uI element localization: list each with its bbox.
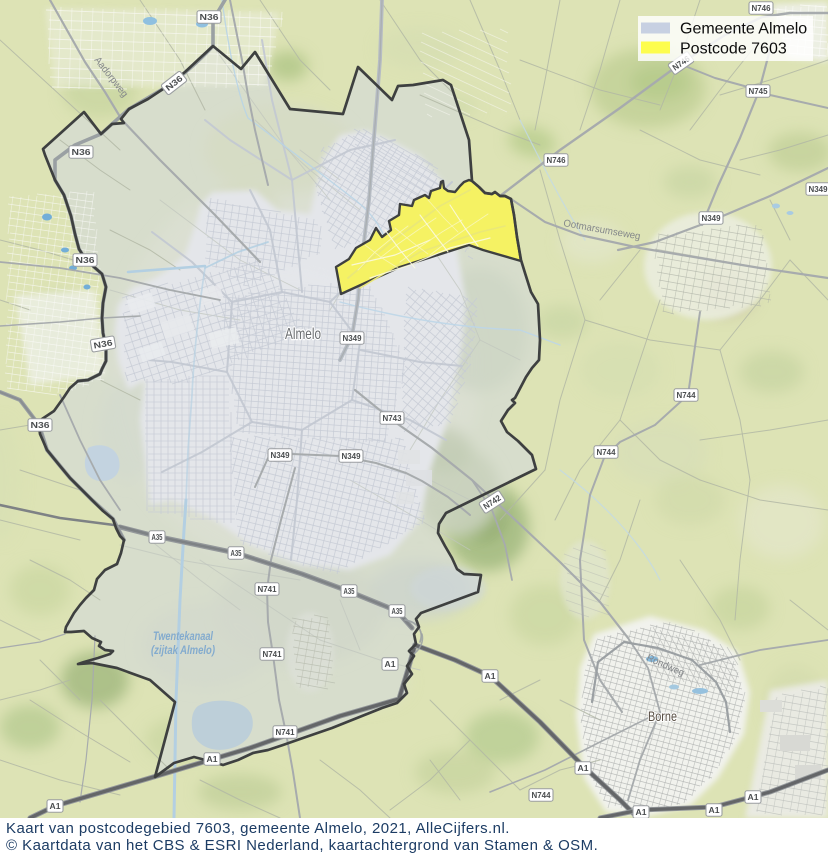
svg-text:N349: N349 bbox=[342, 451, 361, 461]
svg-text:Almelo: Almelo bbox=[285, 326, 321, 343]
svg-text:N744: N744 bbox=[597, 447, 616, 457]
svg-text:A35: A35 bbox=[231, 548, 242, 558]
svg-text:Postcode 7603: Postcode 7603 bbox=[680, 41, 787, 58]
svg-text:N36: N36 bbox=[72, 147, 91, 157]
svg-text:Borne: Borne bbox=[648, 708, 677, 724]
svg-text:A35: A35 bbox=[344, 586, 355, 596]
svg-text:A1: A1 bbox=[709, 805, 720, 815]
svg-text:N36: N36 bbox=[200, 12, 219, 22]
svg-text:N349: N349 bbox=[809, 184, 828, 194]
svg-text:N349: N349 bbox=[271, 450, 290, 460]
svg-text:A35: A35 bbox=[392, 606, 403, 616]
svg-text:A1: A1 bbox=[748, 792, 759, 802]
svg-text:N36: N36 bbox=[31, 420, 50, 430]
svg-text:N741: N741 bbox=[263, 649, 282, 659]
svg-text:A1: A1 bbox=[207, 754, 218, 764]
svg-text:N36: N36 bbox=[76, 255, 95, 265]
svg-text:N741: N741 bbox=[276, 727, 295, 737]
svg-text:Gemeente Almelo: Gemeente Almelo bbox=[680, 21, 807, 38]
svg-text:Twentekanaal: Twentekanaal bbox=[153, 629, 214, 643]
svg-text:A1: A1 bbox=[578, 763, 589, 773]
svg-text:A1: A1 bbox=[485, 671, 496, 681]
svg-text:N746: N746 bbox=[752, 3, 771, 13]
svg-text:N349: N349 bbox=[702, 213, 721, 223]
svg-text:N349: N349 bbox=[343, 333, 362, 343]
svg-text:N744: N744 bbox=[532, 790, 551, 800]
svg-text:(zijtak Almelo): (zijtak Almelo) bbox=[151, 643, 215, 657]
svg-text:A1: A1 bbox=[385, 659, 396, 669]
svg-text:A1: A1 bbox=[50, 801, 61, 811]
svg-text:N741: N741 bbox=[258, 584, 277, 594]
svg-text:N746: N746 bbox=[547, 155, 566, 165]
svg-text:N743: N743 bbox=[383, 413, 402, 423]
svg-text:N744: N744 bbox=[677, 390, 696, 400]
svg-text:A35: A35 bbox=[152, 532, 163, 542]
svg-text:N745: N745 bbox=[749, 86, 768, 96]
svg-text:A1: A1 bbox=[636, 807, 647, 817]
